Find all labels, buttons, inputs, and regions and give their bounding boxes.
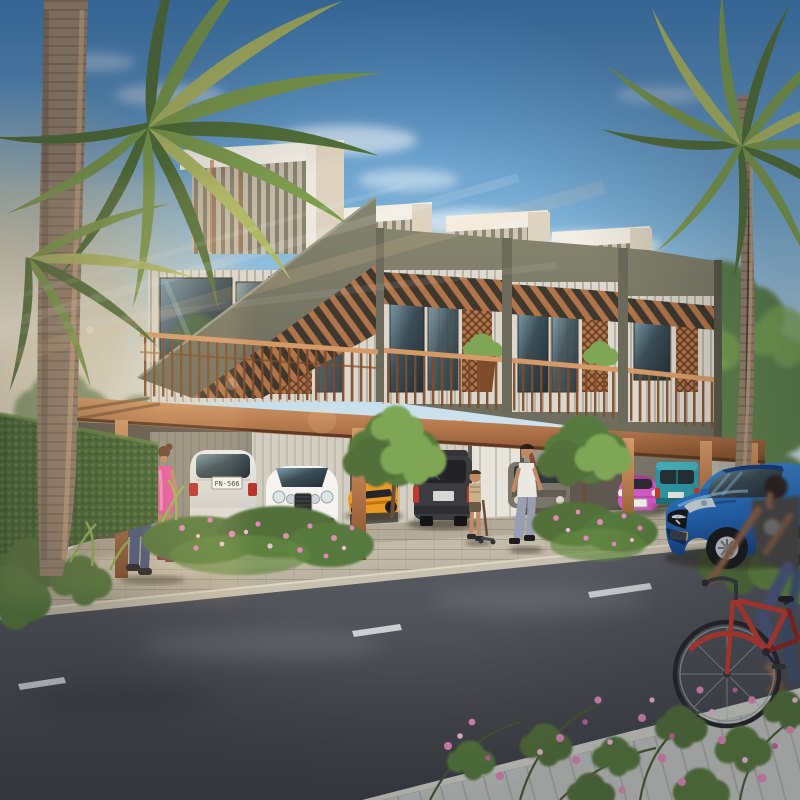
rendered-photo: FN-566 [0, 0, 800, 800]
vignette [0, 0, 800, 800]
townhouse-render: FN-566 [0, 0, 800, 800]
